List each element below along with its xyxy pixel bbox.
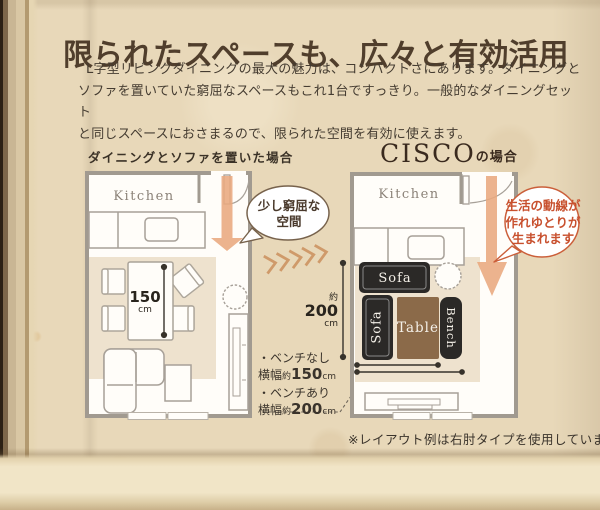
depth-measure xyxy=(341,261,346,360)
plant-icon xyxy=(223,285,247,309)
before-floorplan: Kitchen xyxy=(85,171,252,420)
after-tv-stand xyxy=(365,393,458,410)
after-windows xyxy=(393,413,472,420)
before-side-table xyxy=(165,365,191,401)
sofa-label: Sofa xyxy=(378,271,411,286)
sofa-side-label: Sofa xyxy=(370,310,385,343)
note-bench-none-width: 横幅約150cm xyxy=(258,366,350,385)
before-windows xyxy=(128,413,208,420)
depth-size-label: 約 200 cm xyxy=(300,293,338,329)
kitchen-label: Kitchen xyxy=(378,187,439,202)
before-tv-cabinet xyxy=(229,314,248,410)
note-bench-with: ・ベンチあり xyxy=(258,386,350,401)
bench-label: Bench xyxy=(444,307,458,349)
after-kitchen-counter xyxy=(354,228,464,265)
note-bench-none: ・ベンチなし xyxy=(258,351,350,366)
plant-icon xyxy=(435,263,461,289)
chevron-right-icons xyxy=(265,244,328,272)
table-size-label: 150 cm xyxy=(128,290,162,315)
width-notes: ・ベンチなし 横幅約150cm ・ベンチあり 横幅約200cm xyxy=(258,350,350,420)
after-bubble-text: 生活の動線が 作れゆとりが 生まれます xyxy=(504,198,582,248)
before-bubble-text: 少し窮屈な 空間 xyxy=(247,198,331,230)
after-floorplan: Kitchen Sofa Sofa Table Bench xyxy=(350,172,518,420)
page: 限られたスペースも、広々と有効活用 L字型リビングダイニングの最大の魅力は、コン… xyxy=(0,0,600,510)
kitchen-label: Kitchen xyxy=(113,189,174,204)
note-bench-with-width: 横幅約200cm xyxy=(258,401,350,420)
table-label: Table xyxy=(397,320,439,336)
layout-footnote: ※レイアウト例は右肘タイプを使用しています。 xyxy=(348,429,600,448)
before-kitchen-counter xyxy=(89,212,205,248)
